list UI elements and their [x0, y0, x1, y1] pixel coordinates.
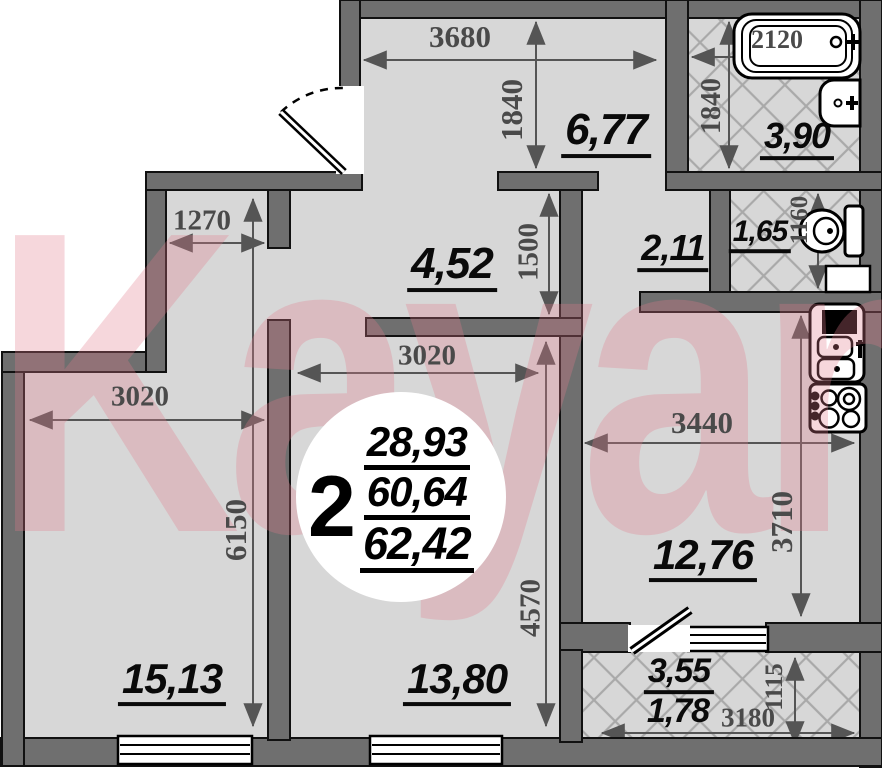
dim-hall-width: 3680	[429, 19, 491, 55]
area-label-bedroom: 15,13	[118, 658, 226, 706]
floor-plan: Kayan 2 28,93 60,64 62,42 6,77 3,90 2,11…	[0, 0, 882, 768]
kitchen-sink-icon	[810, 304, 864, 382]
living-area-value: 28,93	[364, 420, 470, 470]
area-label-kitchen: 12,76	[649, 534, 757, 582]
dim-bath-length: 2120	[751, 25, 803, 55]
room-count: 2	[308, 464, 356, 550]
area-label-wc: 1,65	[729, 217, 791, 253]
area-label-living-room: 13,80	[403, 658, 511, 706]
entrance-door	[281, 86, 364, 174]
dim-kitchen-depth: 3710	[764, 491, 800, 553]
area-summary: 28,93 60,64 62,42	[360, 420, 474, 573]
dim-kitchen-width: 3440	[671, 405, 733, 441]
vent-shaft	[826, 266, 870, 292]
main-area-value: 60,64	[364, 470, 470, 520]
dim-closet-width: 1270	[173, 205, 231, 238]
area-label-hallway: 6,77	[561, 108, 651, 158]
dim-living-depth: 4570	[515, 579, 548, 637]
bedroom-window	[118, 736, 252, 764]
dim-hall-depth: 1840	[494, 79, 530, 141]
area-label-lobby: 2,11	[637, 230, 708, 272]
stove-icon	[810, 384, 866, 432]
dim-bath-depth: 1840	[696, 78, 728, 134]
living-room-window	[370, 736, 502, 764]
dim-left-side-depth: 6150	[218, 499, 254, 561]
kitchen-balcony-window	[688, 627, 768, 651]
area-label-inner-hall: 4,52	[407, 242, 497, 292]
dim-balcony-width: 3180	[721, 703, 775, 734]
unit-info-badge: 2 28,93 60,64 62,42	[296, 392, 506, 602]
area-label-bathroom: 3,90	[760, 118, 834, 160]
area-label-balcony: 3,55	[644, 654, 714, 694]
dim-living-width: 3020	[398, 340, 456, 373]
dim-wc-depth: 1160	[786, 196, 814, 245]
dim-inner-hall-depth: 1500	[513, 223, 546, 281]
total-area-value: 62,42	[360, 520, 474, 573]
area-label-balcony-reduced: 1,78	[643, 694, 713, 730]
dim-bedroom-width: 3020	[111, 381, 169, 414]
